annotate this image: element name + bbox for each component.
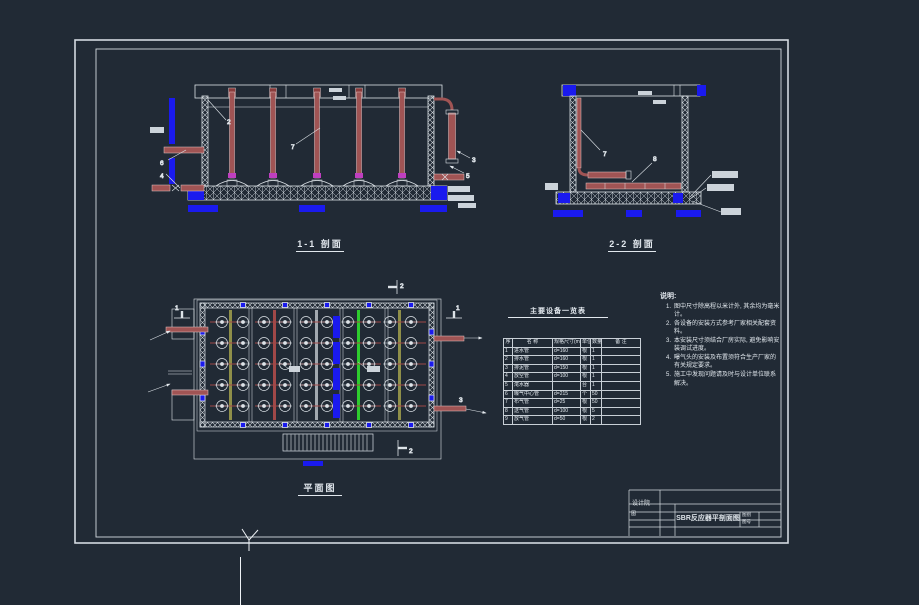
callout-label: 7 bbox=[603, 151, 607, 158]
section-2-2-view[interactable]: 7 8 bbox=[545, 85, 741, 217]
equipment-table-cell: d=215 bbox=[553, 390, 581, 399]
cad-canvas: 2 7 3 5 6 4 bbox=[0, 0, 919, 605]
equipment-table: 序名 称规格尺寸(mm)单位数量备 注1进水管d=160根12排水管d=160根… bbox=[503, 338, 641, 425]
equipment-table-cell: 送气管 bbox=[513, 407, 553, 416]
aeration-riser-pipes[interactable] bbox=[216, 88, 418, 186]
equipment-table-cell bbox=[602, 416, 641, 425]
equipment-table-header-cell: 数量 bbox=[591, 339, 602, 348]
equipment-table-cell: 进水管 bbox=[513, 347, 553, 356]
callout-label: 2 bbox=[409, 448, 413, 455]
equipment-table-cell bbox=[602, 364, 641, 373]
callout-label: 2 bbox=[400, 283, 404, 290]
equipment-table-cell: 布气管 bbox=[513, 399, 553, 408]
plan-view-title: 平面图 bbox=[298, 484, 342, 496]
callout-label: 7 bbox=[291, 144, 295, 151]
titleblock-org: 设计院 bbox=[632, 501, 650, 508]
equipment-table-cell: 1 bbox=[591, 356, 602, 365]
equipment-table-cell: 4 bbox=[504, 373, 513, 382]
leader-lines bbox=[166, 100, 320, 188]
note-item: 3.本安装尺寸须结合厂房实际, 避免影响安装调试进度。 bbox=[660, 337, 780, 353]
equipment-table-cell: 根 bbox=[581, 416, 591, 425]
sheet-type-label: 图别 bbox=[742, 513, 751, 518]
equipment-table-header-cell: 单位 bbox=[581, 339, 591, 348]
callout-label: 6 bbox=[160, 160, 164, 167]
notes-panel: 说明: 1.图中尺寸除高程以米计外, 其余均为毫米计。2.各设备的安装方式参考厂… bbox=[660, 293, 780, 389]
equipment-table-cell bbox=[553, 381, 581, 390]
equipment-table-cell: d=160 bbox=[553, 347, 581, 356]
equipment-table-cell: 放空管 bbox=[513, 373, 553, 382]
equipment-table-cell: 9 bbox=[504, 416, 513, 425]
equipment-table-cell: 6 bbox=[504, 390, 513, 399]
note-item: 1.图中尺寸除高程以米计外, 其余均为毫米计。 bbox=[660, 303, 780, 319]
drawing-title: SBR反应器平剖面图 bbox=[676, 515, 740, 523]
air-drop-pipe[interactable] bbox=[577, 98, 681, 189]
equipment-table-cell: d=160 bbox=[553, 356, 581, 365]
callout-label: 8 bbox=[653, 156, 657, 163]
callout-label: 2 bbox=[227, 119, 231, 126]
equipment-table-cell: 50 bbox=[591, 399, 602, 408]
dimension-text bbox=[553, 210, 701, 217]
equipment-table-cell: 个 bbox=[581, 390, 591, 399]
crosshair-cursor bbox=[241, 529, 259, 605]
inlet-pipes-left[interactable] bbox=[150, 127, 204, 191]
notes-title: 说明: bbox=[660, 293, 780, 301]
section-2-2-title: 2-2 剖面 bbox=[608, 240, 656, 252]
equipment-table-cell: 1 bbox=[504, 347, 513, 356]
equipment-table-header-cell: 名 称 bbox=[513, 339, 553, 348]
equipment-table-cell: 1 bbox=[591, 373, 602, 382]
equipment-table-cell: d=50 bbox=[553, 416, 581, 425]
equipment-table-cell: 7 bbox=[504, 399, 513, 408]
equipment-table-cell: 排水管 bbox=[513, 356, 553, 365]
equipment-table-cell: 5 bbox=[591, 407, 602, 416]
equipment-table-cell bbox=[602, 373, 641, 382]
equipment-table-cell: 根 bbox=[581, 347, 591, 356]
equipment-table-cell: d=150 bbox=[553, 364, 581, 373]
equipment-table-cell: 5 bbox=[504, 381, 513, 390]
equipment-table-cell: 滗水器 bbox=[513, 381, 553, 390]
equipment-table-cell: 曝气中心管 bbox=[513, 390, 553, 399]
titleblock-fig: 图 bbox=[631, 512, 636, 518]
equipment-table-cell: 根 bbox=[581, 364, 591, 373]
section-1-1-title: 1-1 剖面 bbox=[296, 240, 344, 252]
equipment-table-cell: 根 bbox=[581, 399, 591, 408]
equipment-table-title: 主要设备一览表 bbox=[508, 308, 608, 318]
equipment-table-cell: d=25 bbox=[553, 399, 581, 408]
callout-label: 1 bbox=[175, 305, 179, 312]
equipment-table-cell: d=100 bbox=[553, 373, 581, 382]
equipment-table-cell: 排泥管 bbox=[513, 364, 553, 373]
equipment-table-header-cell: 备 注 bbox=[602, 339, 641, 348]
equipment-table-cell bbox=[602, 381, 641, 390]
cell-feed-pipes[interactable] bbox=[229, 310, 401, 420]
equipment-table-cell bbox=[602, 356, 641, 365]
equipment-table-cell bbox=[602, 399, 641, 408]
note-item: 5.施工中发现问题请及时与设计单位联系解决。 bbox=[660, 371, 780, 387]
callout-label: 3 bbox=[472, 157, 476, 164]
equipment-table-cell: d=100 bbox=[553, 407, 581, 416]
equipment-table-cell: 根 bbox=[581, 356, 591, 365]
equipment-table-header-cell: 规格尺寸(mm) bbox=[553, 339, 581, 348]
equipment-table-cell: 台 bbox=[581, 381, 591, 390]
notes-list: 1.图中尺寸除高程以米计外, 其余均为毫米计。2.各设备的安装方式参考厂家相关配… bbox=[660, 303, 780, 388]
equipment-table-cell: 8 bbox=[504, 407, 513, 416]
equipment-table-cell: 2 bbox=[504, 356, 513, 365]
equipment-table-cell: 1 bbox=[591, 381, 602, 390]
callout-label: 1 bbox=[456, 305, 460, 312]
manifold-comb[interactable] bbox=[283, 434, 373, 451]
drawing: 2 7 3 5 6 4 bbox=[0, 0, 919, 605]
equipment-table-header-cell: 序 bbox=[504, 339, 513, 348]
equipment-table-cell bbox=[602, 347, 641, 356]
plan-view[interactable]: 2 2 1 1 3 bbox=[148, 280, 486, 466]
equipment-table-cell: 1 bbox=[591, 347, 602, 356]
equipment-table-cell: 根 bbox=[581, 373, 591, 382]
equipment-table-cell bbox=[602, 390, 641, 399]
section-1-1-view[interactable]: 2 7 3 5 6 4 bbox=[150, 85, 476, 212]
callout-label: 3 bbox=[459, 397, 463, 404]
sheet-no-label: 图号 bbox=[742, 520, 751, 525]
equipment-table-cell: 2 bbox=[591, 416, 602, 425]
callout-label: 5 bbox=[466, 173, 470, 180]
equipment-table-cell bbox=[602, 407, 641, 416]
equipment-table-cell: 1 bbox=[591, 364, 602, 373]
note-item: 4.曝气头的安装及布置须符合生产厂家的有关规定要求。 bbox=[660, 354, 780, 370]
equipment-table-cell: 根 bbox=[581, 407, 591, 416]
callout-label: 4 bbox=[160, 173, 164, 180]
note-item: 2.各设备的安装方式参考厂家相关配套资料。 bbox=[660, 320, 780, 336]
title-block bbox=[629, 490, 781, 536]
equipment-table-cell: 放气管 bbox=[513, 416, 553, 425]
equipment-table-cell: 50 bbox=[591, 390, 602, 399]
equipment-table-cell: 3 bbox=[504, 364, 513, 373]
leader-lines bbox=[148, 331, 192, 392]
